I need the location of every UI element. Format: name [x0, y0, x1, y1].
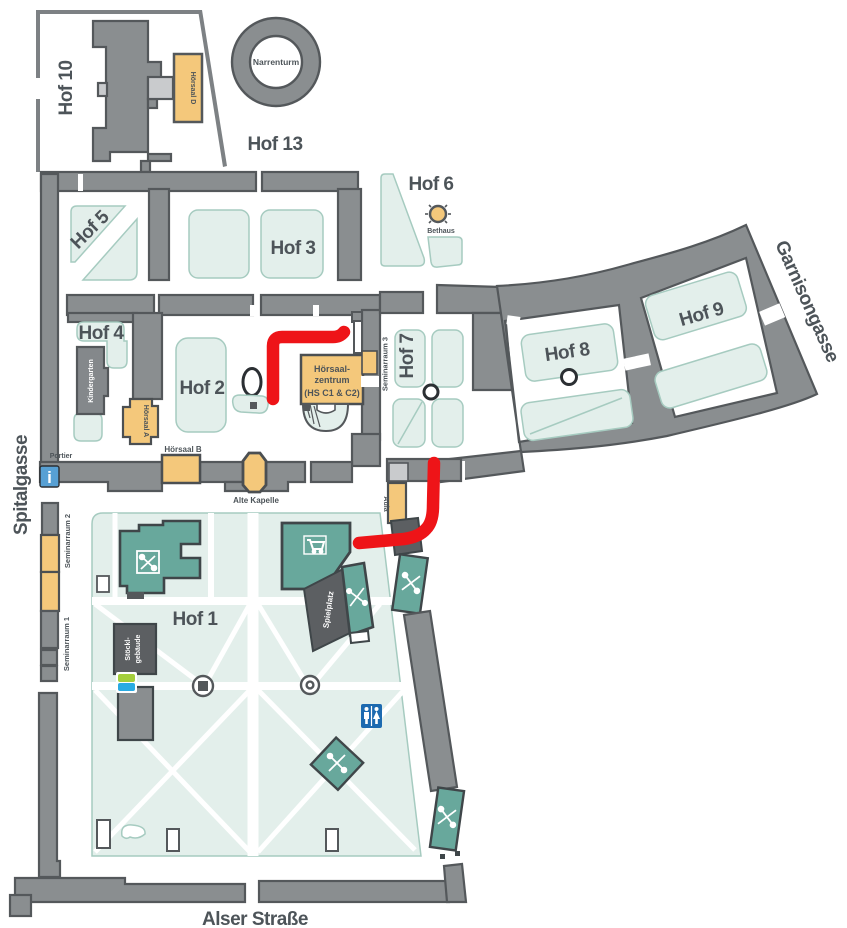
svg-text:Hörsaal B: Hörsaal B: [164, 445, 202, 454]
svg-text:Portier: Portier: [50, 453, 73, 460]
svg-text:Spitalgasse: Spitalgasse: [11, 435, 32, 535]
svg-text:Hof 10: Hof 10: [56, 60, 77, 115]
svg-text:Seminarraum 2: Seminarraum 2: [63, 514, 72, 568]
svg-text:Seminarraum 1: Seminarraum 1: [62, 617, 71, 671]
svg-text:Seminarraum 3: Seminarraum 3: [381, 337, 390, 391]
svg-text:Alser Straße: Alser Straße: [202, 909, 308, 928]
svg-text:Aula: Aula: [382, 496, 389, 511]
svg-text:Hof 7: Hof 7: [397, 334, 418, 379]
svg-text:Hof 1: Hof 1: [173, 609, 219, 630]
svg-text:Hof 13: Hof 13: [247, 134, 302, 155]
svg-text:Hof 3: Hof 3: [271, 238, 316, 259]
svg-text:Hof 6: Hof 6: [409, 174, 454, 195]
svg-text:Hof 2: Hof 2: [180, 378, 225, 399]
svg-text:i: i: [47, 468, 52, 487]
svg-text:gebäude: gebäude: [135, 635, 142, 664]
svg-text:Narrenturm: Narrenturm: [253, 57, 300, 67]
svg-text:(HS C1 & C2): (HS C1 & C2): [304, 388, 360, 398]
svg-text:Hof 4: Hof 4: [79, 323, 125, 344]
svg-text:Hörsaal D: Hörsaal D: [189, 72, 196, 105]
svg-text:Kindergarten: Kindergarten: [88, 359, 95, 403]
svg-text:Hörsaal-: Hörsaal-: [314, 364, 350, 374]
svg-text:zentrum: zentrum: [314, 375, 349, 385]
svg-text:Hörsaal A: Hörsaal A: [142, 405, 149, 437]
svg-text:Stöckl-: Stöckl-: [125, 637, 132, 661]
svg-text:Alte Kapelle: Alte Kapelle: [233, 496, 279, 505]
svg-text:Bethaus: Bethaus: [427, 228, 455, 235]
